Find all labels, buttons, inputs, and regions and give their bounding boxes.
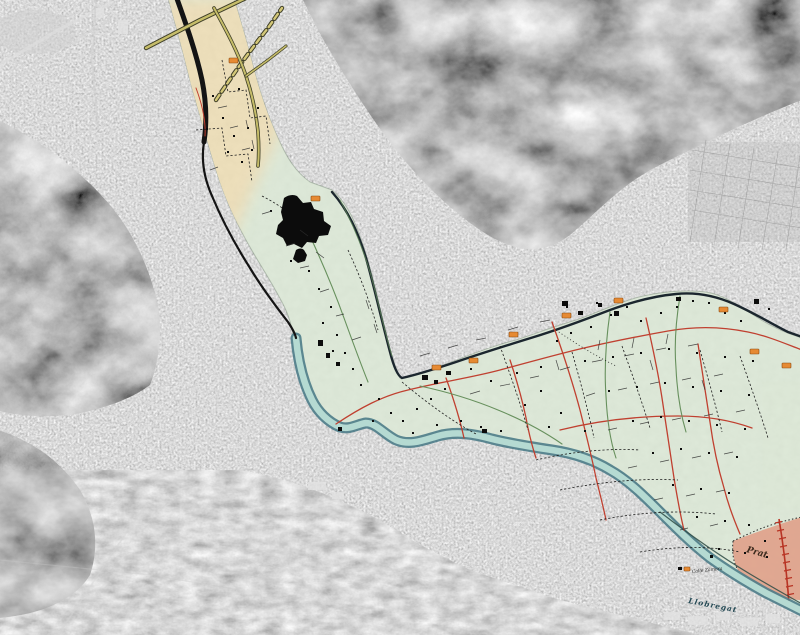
route-marker xyxy=(509,332,518,337)
route-marker xyxy=(229,58,238,63)
route-marker xyxy=(311,196,320,201)
route-marker xyxy=(750,349,759,354)
route-marker xyxy=(719,307,728,312)
route-marker xyxy=(614,298,623,303)
route-marker xyxy=(782,363,791,368)
route-marker xyxy=(432,365,441,370)
route-marker xyxy=(684,567,690,571)
route-marker xyxy=(469,358,478,363)
screenshot-root: Prat Llobregat Calle Zamora xyxy=(0,0,800,635)
composite-map-image: Prat Llobregat Calle Zamora xyxy=(0,0,800,635)
route-marker xyxy=(562,313,571,318)
